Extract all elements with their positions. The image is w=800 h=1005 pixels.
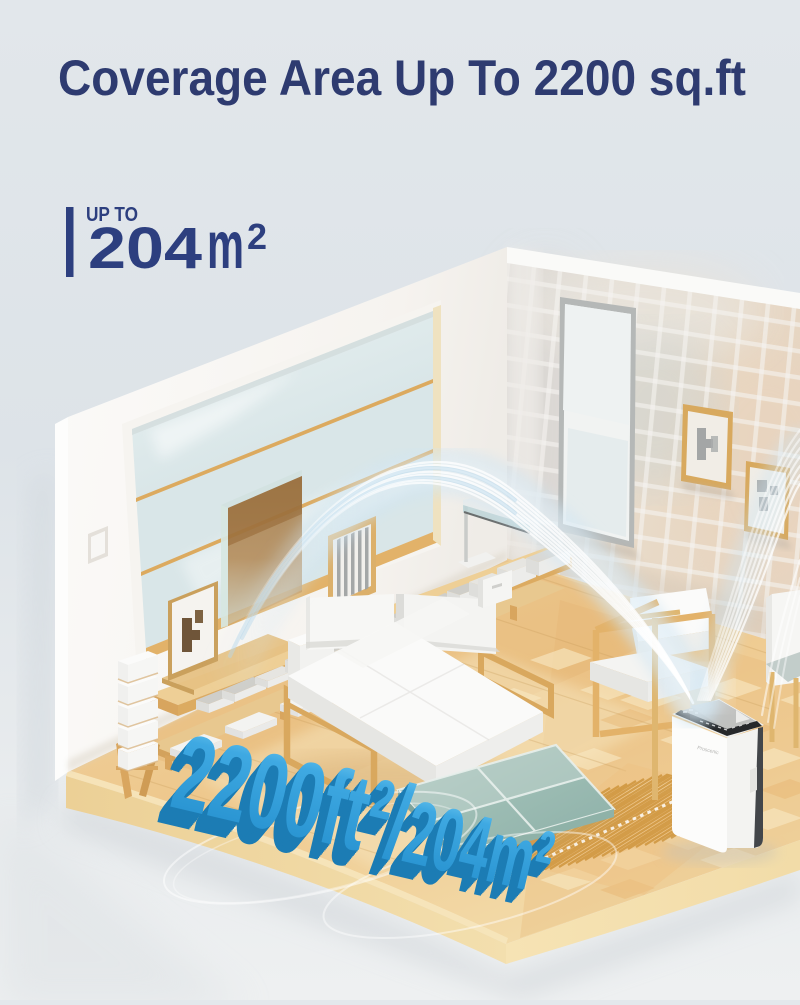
svg-text:m: m bbox=[207, 208, 244, 283]
svg-text:204: 204 bbox=[88, 216, 202, 281]
svg-text:Coverage Area Up To 2200 sq.ft: Coverage Area Up To 2200 sq.ft bbox=[58, 50, 746, 106]
svg-text:2: 2 bbox=[247, 216, 267, 257]
